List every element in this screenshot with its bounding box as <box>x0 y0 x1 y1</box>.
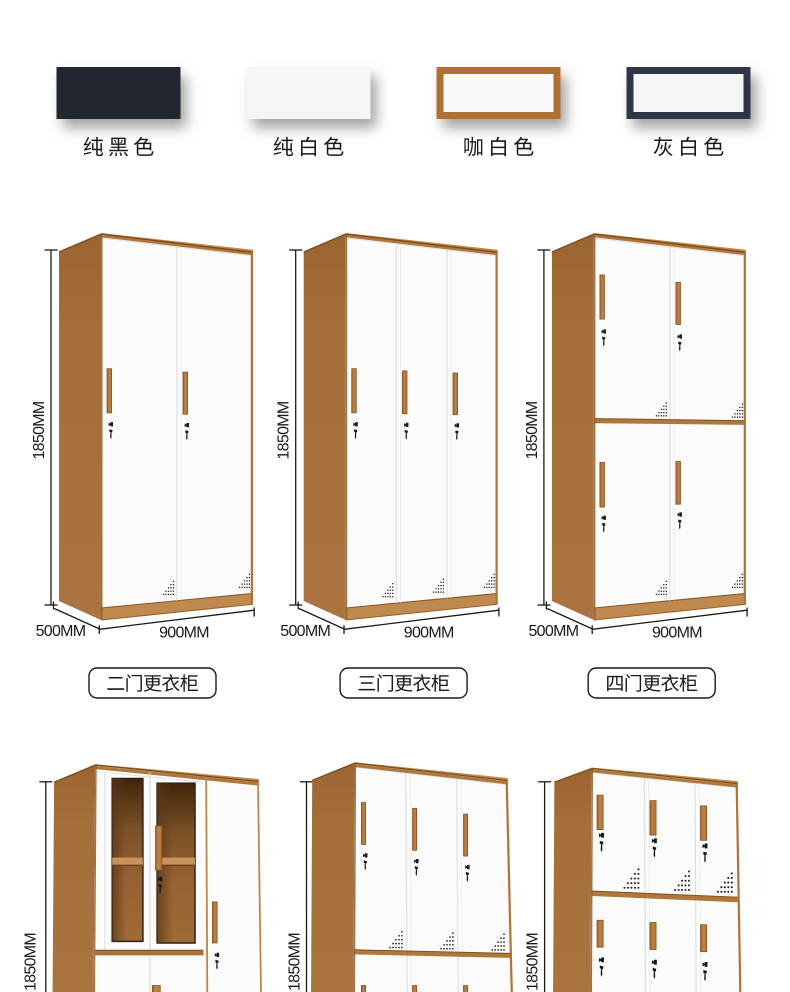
svg-text:1850MM: 1850MM <box>287 933 304 991</box>
svg-text:500MM: 500MM <box>280 623 330 640</box>
svg-text:1850MM: 1850MM <box>23 933 40 991</box>
svg-text:900MM: 900MM <box>159 625 209 642</box>
svg-text:900MM: 900MM <box>404 625 454 642</box>
svg-text:1850MM: 1850MM <box>524 401 541 459</box>
svg-text:500MM: 500MM <box>528 623 578 640</box>
svg-text:900MM: 900MM <box>652 625 702 642</box>
svg-text:1850MM: 1850MM <box>276 401 293 459</box>
svg-text:1850MM: 1850MM <box>31 401 48 459</box>
svg-text:1850MM: 1850MM <box>525 933 542 991</box>
svg-text:500MM: 500MM <box>36 623 86 640</box>
